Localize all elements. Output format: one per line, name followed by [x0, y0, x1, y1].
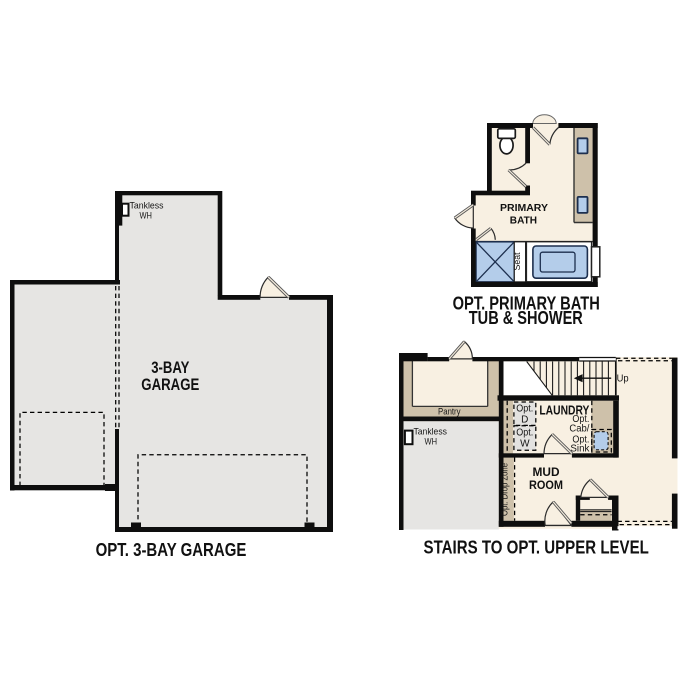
svg-text:Opt.: Opt. — [516, 404, 533, 415]
svg-text:Opt.: Opt. — [516, 428, 533, 439]
svg-text:W: W — [520, 439, 530, 450]
svg-text:TUB & SHOWER: TUB & SHOWER — [469, 308, 583, 328]
svg-text:Sink: Sink — [570, 443, 590, 454]
svg-text:ROOM: ROOM — [529, 478, 563, 492]
svg-text:Seat: Seat — [512, 252, 522, 270]
svg-text:3-BAY: 3-BAY — [151, 359, 189, 377]
svg-text:OPT. 3-BAY GARAGE: OPT. 3-BAY GARAGE — [96, 540, 247, 560]
svg-text:PRIMARY: PRIMARY — [500, 203, 548, 214]
svg-text:Opt. Drop Zone: Opt. Drop Zone — [500, 463, 511, 516]
svg-text:WH: WH — [425, 437, 438, 448]
svg-text:STAIRS TO OPT. UPPER LEVEL: STAIRS TO OPT. UPPER LEVEL — [424, 538, 649, 558]
svg-text:BATH: BATH — [510, 215, 537, 226]
svg-text:Cab/: Cab/ — [569, 424, 589, 435]
svg-text:GARAGE: GARAGE — [141, 376, 199, 394]
svg-text:WH: WH — [139, 210, 152, 221]
svg-text:D: D — [521, 415, 528, 426]
svg-text:Up: Up — [617, 373, 630, 384]
svg-text:Pantry: Pantry — [438, 406, 461, 417]
